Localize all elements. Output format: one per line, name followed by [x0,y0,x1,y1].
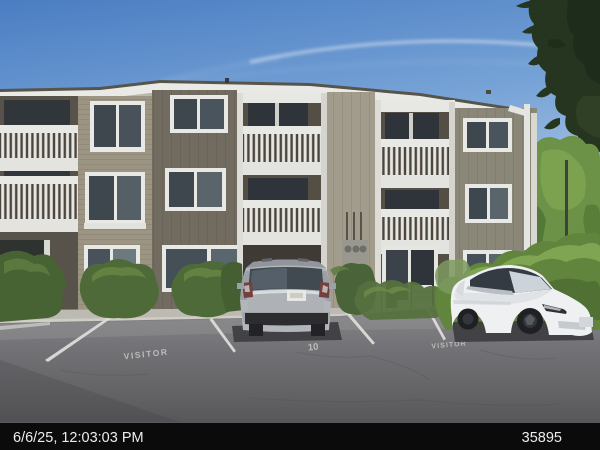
svg-text:35895: 35895 [522,430,562,446]
svg-text:6/6/25, 12:03:03 PM: 6/6/25, 12:03:03 PM [13,430,144,446]
svg-text:10: 10 [307,342,318,354]
